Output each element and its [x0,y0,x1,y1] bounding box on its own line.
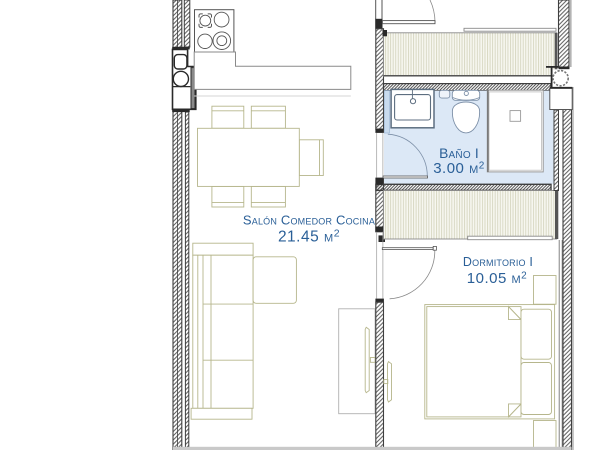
svg-text:Baño I: Baño I [439,146,479,161]
svg-text:Salón Comedor Cocina: Salón Comedor Cocina [243,213,375,228]
svg-text:10.05 m2: 10.05 m2 [467,270,527,287]
svg-text:3.00 m2: 3.00 m2 [433,160,485,177]
svg-text:21.45 m2: 21.45 m2 [278,228,340,246]
svg-text:Dormitorio I: Dormitorio I [463,255,533,269]
